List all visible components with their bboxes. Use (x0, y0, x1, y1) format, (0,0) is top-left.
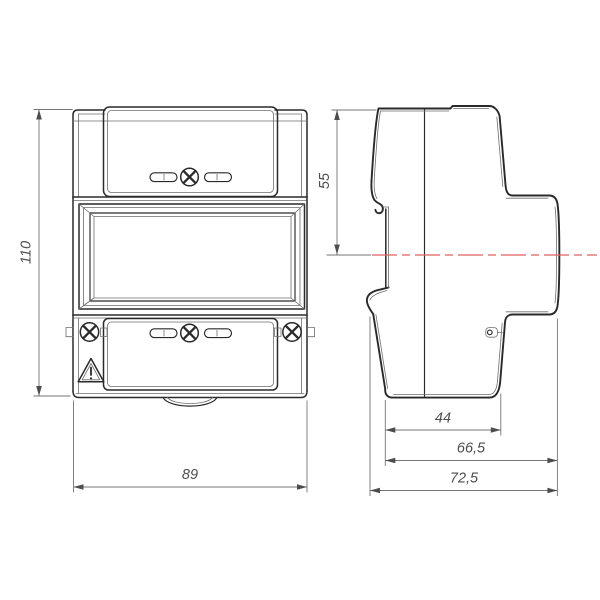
front-left-ear (73, 110, 105, 197)
bezel-miters (79, 204, 305, 309)
front-left-ear-inner (79, 114, 106, 197)
dimension-label-89: 89 (182, 467, 198, 483)
dimension-label-72-5: 72,5 (450, 471, 479, 487)
bottom-edge (73, 391, 307, 398)
bezel-outer (79, 204, 305, 309)
technical-drawing: 110 89 55 44 (0, 0, 600, 600)
bottom-bump-inner (168, 398, 213, 404)
drawing-canvas: 110 89 55 44 (0, 0, 600, 600)
phillips-screw-icon (181, 168, 199, 186)
seal-slot (150, 329, 177, 338)
display-window-bezel (79, 204, 305, 309)
dimension-label-44: 44 (435, 411, 451, 427)
din-clip-upper (371, 181, 383, 213)
seal-eye-tab (486, 328, 503, 338)
bezel-line (84, 208, 301, 306)
phillips-screw-icon (275, 323, 315, 341)
front-right-ear (275, 110, 307, 197)
side-view (367, 106, 597, 398)
din-clip-lower (367, 288, 389, 315)
top-terminal-cover (104, 107, 278, 197)
dimension-depth-total: 72,5 (370, 317, 557, 497)
seal-slot (150, 173, 177, 182)
dimension-front-width: 89 (74, 401, 308, 493)
warning-triangle-icon (78, 359, 104, 382)
side-profile-outline (372, 106, 560, 398)
phillips-screw-icon (181, 324, 199, 342)
bottom-terminal-cover (104, 319, 278, 391)
seal-slot (205, 329, 232, 338)
dimension-label-55: 55 (317, 172, 333, 189)
front-view (66, 107, 315, 406)
dimensions: 110 89 55 44 (19, 110, 558, 497)
bezel-line (90, 213, 295, 301)
top-terminal-cover-inner (108, 111, 274, 193)
dimension-front-height: 110 (19, 110, 73, 397)
bottom-bump (163, 398, 217, 407)
phillips-screw-icon (66, 323, 107, 341)
display-window (94, 217, 291, 299)
side-profile-inner-lines (370, 109, 557, 395)
screw-tab (308, 328, 315, 337)
dimension-top-to-axis: 55 (317, 110, 377, 255)
dimension-label-110: 110 (19, 241, 35, 264)
dimension-depth-mid: 66,5 (385, 319, 557, 497)
dimension-label-66-5: 66,5 (457, 441, 486, 457)
seal-slot (205, 173, 232, 182)
front-right-ear-inner (275, 114, 302, 197)
